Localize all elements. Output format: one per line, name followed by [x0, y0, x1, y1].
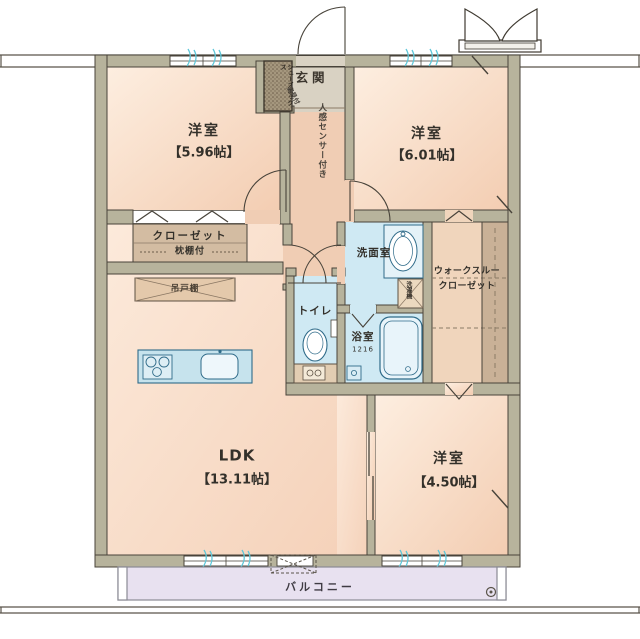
ldk-size: 【13.11帖】 [197, 474, 277, 487]
toilet-bowl [303, 329, 327, 361]
kitchen-sink [201, 354, 238, 379]
window-bedroom-nw [170, 49, 236, 66]
walkthrough-closet-label-2: クローゼット [438, 283, 495, 292]
walkthrough-closet-label-1: ウォークスルー [434, 268, 500, 277]
floor-ldk-ext [337, 395, 367, 555]
folding-door-mark [136, 211, 168, 222]
folding-door-mark [196, 211, 228, 222]
closet-label: クローゼット [153, 231, 228, 242]
floor-plan-drawing [0, 0, 640, 639]
meter-box-doors [459, 9, 541, 52]
entrance-door-arc [298, 7, 345, 54]
faucet [218, 350, 221, 353]
bedroom-se-name: 洋室 [433, 452, 465, 466]
bedroom-nw-name: 洋室 [188, 124, 220, 138]
washroom-label: 洗面室 [357, 248, 392, 259]
bedroom-nw-size: 【5.96帖】 [168, 147, 239, 160]
bedroom-se-size: 【4.50帖】 [413, 477, 484, 490]
closet-note: 枕棚付 [175, 248, 205, 257]
motion-sensor-note: 人感センサー付き [316, 103, 326, 195]
ldk-name: LDK [219, 449, 256, 464]
meter-box-door-left [465, 9, 500, 41]
bedroom-ne-name: 洋室 [411, 127, 443, 141]
drain-center [490, 591, 493, 594]
toilet-label: トイレ [298, 306, 333, 317]
balcony-label: バルコニー [285, 582, 355, 593]
bathroom-label: 浴室 [352, 332, 375, 343]
floor-walkthrough-closet [432, 222, 482, 383]
genkan-label: 玄関 [295, 72, 328, 85]
bath-faucet-counter [347, 366, 361, 380]
floor-plan: 玄関 人感センサー付き シューズボックス 姿見付 洋室 【5.96帖】 洋室 【… [0, 0, 640, 639]
bedroom-ne-size: 【6.01帖】 [391, 150, 462, 163]
bathtub [380, 317, 422, 379]
hanging-cupboard-label: 吊戸棚 [171, 285, 200, 294]
meter-box-door-right [502, 9, 537, 41]
paper-holder [331, 320, 337, 337]
laundry-label: 洗濯機 [404, 281, 411, 307]
entrance-opening [296, 55, 345, 67]
window-bedroom-ne [390, 49, 452, 66]
bathroom-size-code: 1216 [352, 347, 374, 354]
